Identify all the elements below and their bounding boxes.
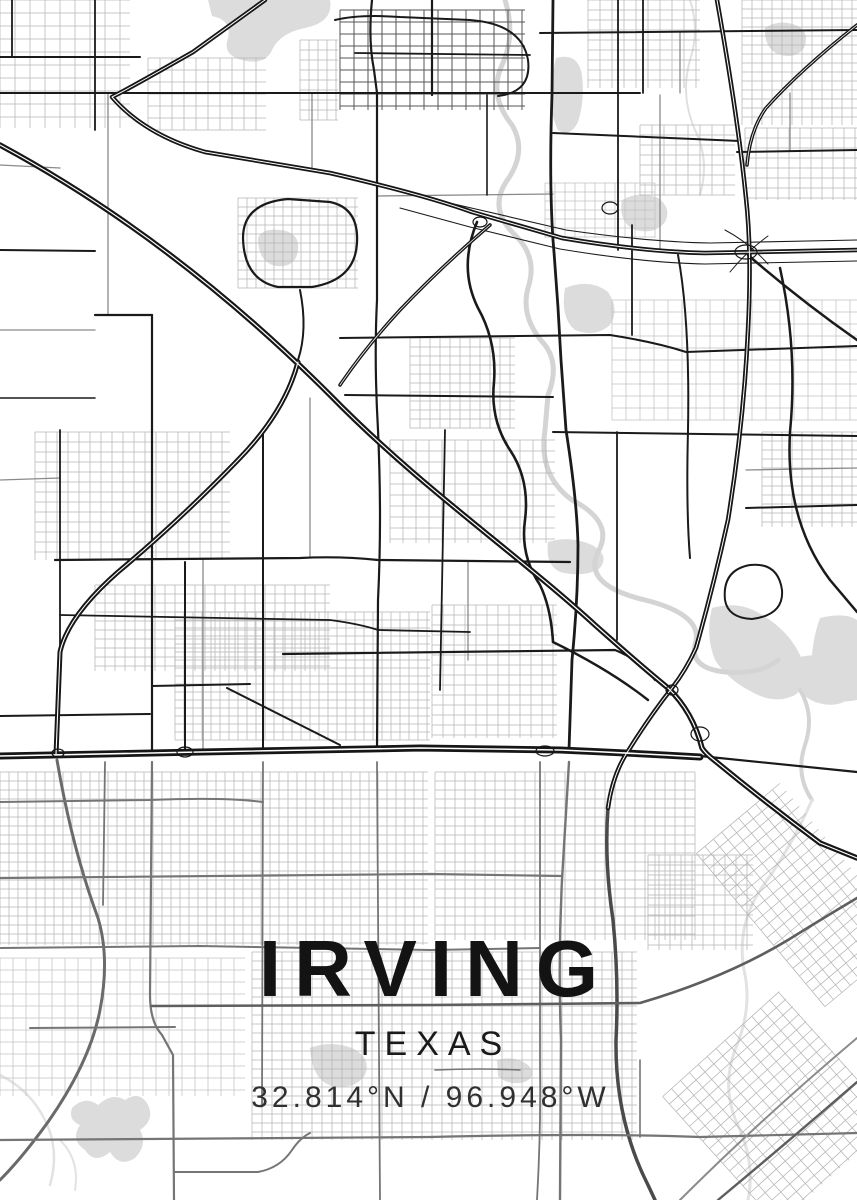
city-street-map [0,0,857,1200]
map-poster: IRVING TEXAS 32.814°N / 96.948°W [0,0,857,1200]
